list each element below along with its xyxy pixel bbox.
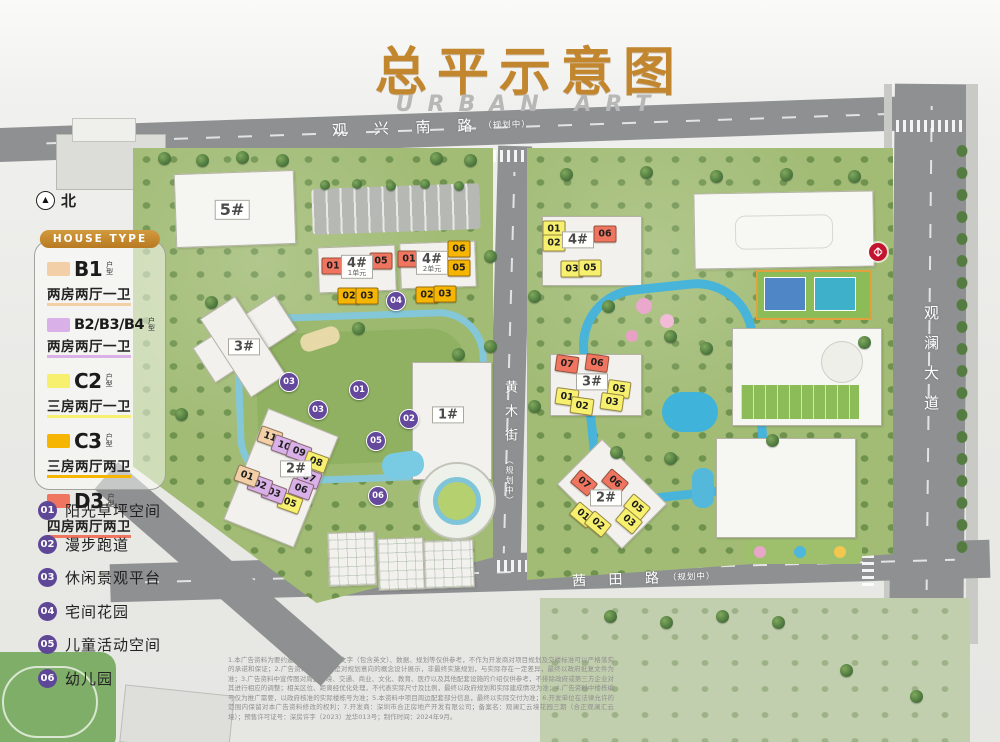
tree-icon [236,151,249,164]
kindergarten-playground [433,477,481,525]
house-type-desc: 三房两厅一卫 [47,395,131,418]
building-label: 1# [432,406,464,423]
tree-icon [420,179,430,189]
amenity-label: 儿童活动空间 [65,634,161,655]
amenity-item: 02漫步跑道 [38,534,161,555]
amenity-label: 幼儿园 [65,668,113,689]
crosswalk [862,554,874,586]
play-dot [834,546,846,558]
unit-chip: 05 [448,260,471,277]
disclaimer-text: 1.本广告资料为要约邀请，所有图片、文字（包含英文）、数据、规划等仅供参考，不作… [228,656,614,722]
tree-icon [848,170,861,183]
tree-icon [772,616,785,629]
road-note: （规划中） [668,571,716,583]
amenity-marker: 03 [279,372,299,392]
play-dot [754,546,766,558]
crosswalk [497,560,529,572]
amenity-item: 05儿童活动空间 [38,634,161,655]
commercial-roof [327,531,377,587]
unit-chip: 07 [554,354,579,374]
house-type-desc: 两房两厅一卫 [47,283,131,306]
north-arrow-icon: ▲ [36,191,55,210]
tree-icon [858,336,871,349]
parking-lot [311,183,481,235]
sports-courts [756,270,872,320]
crosswalk [493,150,525,162]
road-label-south: 茜 田 路（规划中） [572,566,716,591]
building-label: 4#2单元 [416,251,448,275]
legend-item: B2/B3/B4户型两房两厅一卫 [47,317,159,358]
page-subtitle: URBAN ART [60,92,1000,117]
house-type-code: C3 [74,429,102,453]
road-note: （规划中） [483,120,531,132]
tree-icon [484,340,497,353]
pond [662,392,718,432]
tree-icon [604,610,617,623]
house-type-code: B1 [74,257,102,281]
amenity-marker: 03 [308,400,328,420]
tree-icon [664,452,677,465]
house-type-tag: 户型 [106,262,114,277]
flower-garden [626,330,638,342]
unit-chip: 03 [434,286,457,303]
tree-icon [610,446,623,459]
tree-icon [196,154,209,167]
north-indicator: ▲ 北 [36,190,76,211]
legend-item-top: C2户型 [47,369,159,393]
tree-icon [454,181,464,191]
playground-strip [744,540,862,564]
road-label-east: 观澜大道 [921,305,942,425]
legend-item-top: B2/B3/B4户型 [47,317,159,333]
amenity-marker: 04 [386,291,406,311]
house-type-legend: HOUSE TYPE B1户型两房两厅一卫B2/B3/B4户型两房两厅一卫C2户… [34,240,166,490]
amenity-marker: 01 [349,380,369,400]
legend-item: B1户型两房两厅一卫 [47,257,159,306]
tree-icon [700,342,713,355]
north-label: 北 [61,190,76,211]
tree-icon [464,154,477,167]
house-type-swatch [47,434,70,448]
tree-icon [320,180,330,190]
road-name: 茜 田 路 [572,570,668,589]
amenity-label: 漫步跑道 [65,534,129,555]
unit-chip: 03 [599,392,624,412]
site-plan: 总平示意图 URBAN ART 观 兴 南 路（规划中） 茜 田 路（规划中） … [0,0,1000,742]
amenity-number: 04 [38,602,57,621]
building-label: 5# [215,200,250,220]
amenity-item: 06幼儿园 [38,668,161,689]
tree-icon [710,170,723,183]
tree-icon [452,348,465,361]
green-court [741,385,859,419]
basketball-court [814,277,856,311]
roof-detail [735,214,834,250]
legend-item: C2户型三房两厅一卫 [47,369,159,418]
tree-icon [716,610,729,623]
large-building-north [693,190,874,269]
tree-icon [560,168,573,181]
crosswalk [896,120,962,132]
house-type-code: C2 [74,369,102,393]
road-name: 观澜大道 [921,305,942,425]
tree-icon [528,290,541,303]
amenity-legend: 01阳光草坪空间02漫步跑道03休闲景观平台04宅间花园05儿童活动空间06幼儿… [38,500,161,701]
house-type-tag: 户型 [106,434,114,449]
tree-icon [175,408,188,421]
unit-chip: 03 [356,288,379,305]
unit-chip: 06 [584,353,609,373]
house-type-swatch [47,262,70,276]
commercial-roof [423,539,475,589]
tree-icon [205,296,218,309]
roof-circle [821,341,863,383]
tree-icon [484,250,497,263]
amenity-item: 03休闲景观平台 [38,567,161,588]
amenity-number: 03 [38,568,57,587]
tree-icon [766,434,779,447]
tree-icon [602,300,615,313]
amenity-number: 06 [38,669,57,688]
tree-icon [352,322,365,335]
house-type-code: B2/B3/B4 [74,317,144,333]
tree-icon [158,152,171,165]
legend-item: C3户型三房两厅两卫 [47,429,159,478]
tree-icon [640,166,653,179]
amenity-item: 04宅间花园 [38,601,161,622]
building-label: 2# [280,460,312,477]
unit-chip: 06 [448,241,471,258]
tree-icon [664,330,677,343]
legend-item-top: C3户型 [47,429,159,453]
amenity-item: 01阳光草坪空间 [38,500,161,521]
amenity-label: 阳光草坪空间 [65,500,161,521]
tree-icon [352,179,362,189]
play-dot [794,546,806,558]
tree-icon [430,152,443,165]
amenity-marker: 02 [399,409,419,429]
tree-icon [780,168,793,181]
unit-chip: 05 [579,260,602,277]
tree-icon [910,690,923,703]
amenity-marker: 06 [368,486,388,506]
amenity-number: 05 [38,635,57,654]
tree-icon [528,400,541,413]
tree-icon [276,154,289,167]
flower-garden [660,314,674,328]
road-name: 黄木街 [500,380,519,452]
flower-garden [636,298,652,314]
topleft-building-roof [72,118,136,142]
legend-header: HOUSE TYPE [40,230,160,248]
house-type-tag: 户型 [106,374,114,389]
amenity-number: 02 [38,535,57,554]
large-building-south [716,438,856,538]
basketball-court [764,277,806,311]
house-type-swatch [47,318,70,332]
road-label-middle: 黄木街 （规划中） [500,380,519,506]
house-type-desc: 两房两厅一卫 [47,335,131,358]
commercial-roof [377,537,425,591]
unit-chip: 06 [594,226,617,243]
road-name: 观 兴 南 路 [332,116,484,139]
kindergarten-building [418,462,496,540]
road-note: （规划中） [504,456,515,506]
amenity-marker: 05 [366,431,386,451]
building-label: 3# [576,373,608,390]
building-label: 3# [228,338,260,355]
metro-station-icon [869,243,887,261]
pool [692,468,714,508]
building-label: 4#1单元 [341,255,373,279]
house-type-tag: 户型 [148,318,156,333]
roadside-tree-strip [952,140,974,560]
legend-item-top: B1户型 [47,257,159,281]
amenity-label: 休闲景观平台 [65,567,161,588]
house-type-swatch [47,374,70,388]
house-type-desc: 三房两厅两卫 [47,455,131,478]
amenity-number: 01 [38,501,57,520]
tree-icon [386,181,396,191]
building-label: 4# [562,231,594,248]
unit-chip: 02 [569,396,594,416]
amenity-label: 宅间花园 [65,601,129,622]
tree-icon [840,664,853,677]
building-label: 2# [590,489,622,506]
tree-icon [660,616,673,629]
